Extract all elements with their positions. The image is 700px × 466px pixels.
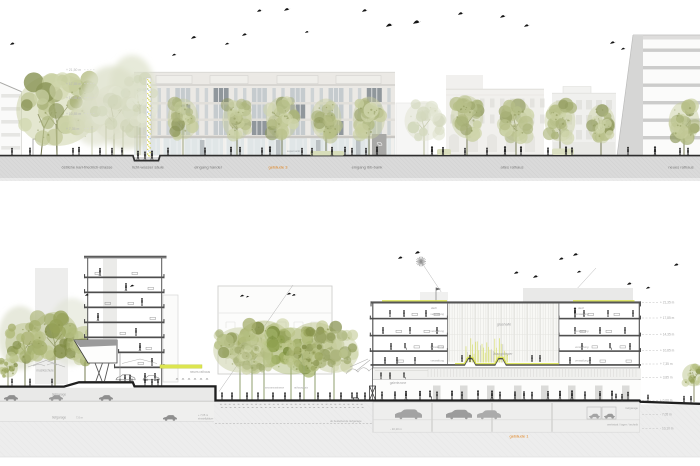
- svg-text:licht-wasser säule: licht-wasser säule: [132, 165, 165, 170]
- svg-text:altes rathaus: altes rathaus: [501, 165, 524, 170]
- svg-text:verwaltung: verwaltung: [575, 312, 589, 316]
- svg-text:klangkörper: klangkörper: [494, 352, 514, 356]
- svg-text:eingang handel: eingang handel: [194, 165, 221, 170]
- svg-text:verwaltung: verwaltung: [430, 345, 444, 349]
- svg-text:+ 17,85 m: + 17,85 m: [660, 316, 675, 320]
- svg-text:rathausplatz: rathausplatz: [294, 386, 309, 390]
- svg-text:+ 3,85 m: + 3,85 m: [660, 376, 673, 380]
- svg-text:verwaltung: verwaltung: [575, 359, 589, 363]
- svg-text:panoramastrasse: panoramastrasse: [264, 386, 285, 390]
- svg-text:+ 21,50 m: + 21,50 m: [66, 68, 81, 72]
- svg-text:verwaltung: verwaltung: [430, 312, 444, 316]
- svg-text:+ 10,85 m: + 10,85 m: [660, 349, 675, 353]
- svg-text:+ 7,35 m: + 7,35 m: [66, 127, 79, 131]
- svg-text:7,0 m: 7,0 m: [76, 416, 84, 420]
- svg-text:verwaltung: verwaltung: [430, 359, 444, 363]
- svg-text:gebäude 1: gebäude 1: [510, 434, 530, 439]
- svg-text:eingang lbb-bank: eingang lbb-bank: [352, 165, 383, 170]
- svg-text:gebäude 3: gebäude 3: [269, 165, 289, 170]
- svg-text:ok bestehende tiefgarage: ok bestehende tiefgarage: [330, 419, 362, 423]
- svg-text:galeriezone: galeriezone: [390, 381, 407, 385]
- svg-text:+ 17,85 m: + 17,85 m: [66, 82, 81, 86]
- svg-text:+ 14,35 m: + 14,35 m: [660, 333, 675, 337]
- svg-text:verwaltung: verwaltung: [430, 329, 444, 333]
- svg-text:neues rathaus: neues rathaus: [668, 165, 693, 170]
- svg-text:- 7,05 m: - 7,05 m: [660, 413, 672, 417]
- svg-text:+ 10,85 m: + 10,85 m: [66, 112, 81, 116]
- svg-text:tiefgarage: tiefgarage: [626, 406, 639, 410]
- svg-text:tiefgarage: tiefgarage: [52, 393, 66, 397]
- svg-text:werkstatt / lager / technik: werkstatt / lager / technik: [607, 423, 639, 427]
- svg-text:dach: dach: [431, 306, 438, 310]
- svg-text:+ 7,35 m: + 7,35 m: [660, 362, 673, 366]
- svg-text:verwaltung: verwaltung: [575, 345, 589, 349]
- svg-text:musikschule: musikschule: [36, 369, 54, 373]
- svg-text:östliche karl-friedrich-strass: östliche karl-friedrich-strasse: [62, 165, 114, 170]
- svg-text:glashalle: glashalle: [497, 323, 511, 327]
- svg-text:+ 21,35 m: + 21,35 m: [660, 301, 675, 305]
- svg-text:+ 7,05 m: + 7,05 m: [198, 413, 208, 417]
- svg-text:- 10,10 m: - 10,10 m: [390, 427, 402, 431]
- svg-text:tiefgarage: tiefgarage: [52, 416, 66, 420]
- svg-text:verwaltung: verwaltung: [575, 329, 589, 333]
- svg-text:supermarkt: supermarkt: [287, 149, 300, 153]
- svg-text:- 10,10 m: - 10,10 m: [660, 427, 674, 431]
- svg-text:neues rathaus: neues rathaus: [190, 370, 211, 374]
- svg-text:dach: dach: [578, 306, 585, 310]
- svg-text:+ 14,35 m: + 14,35 m: [66, 96, 81, 100]
